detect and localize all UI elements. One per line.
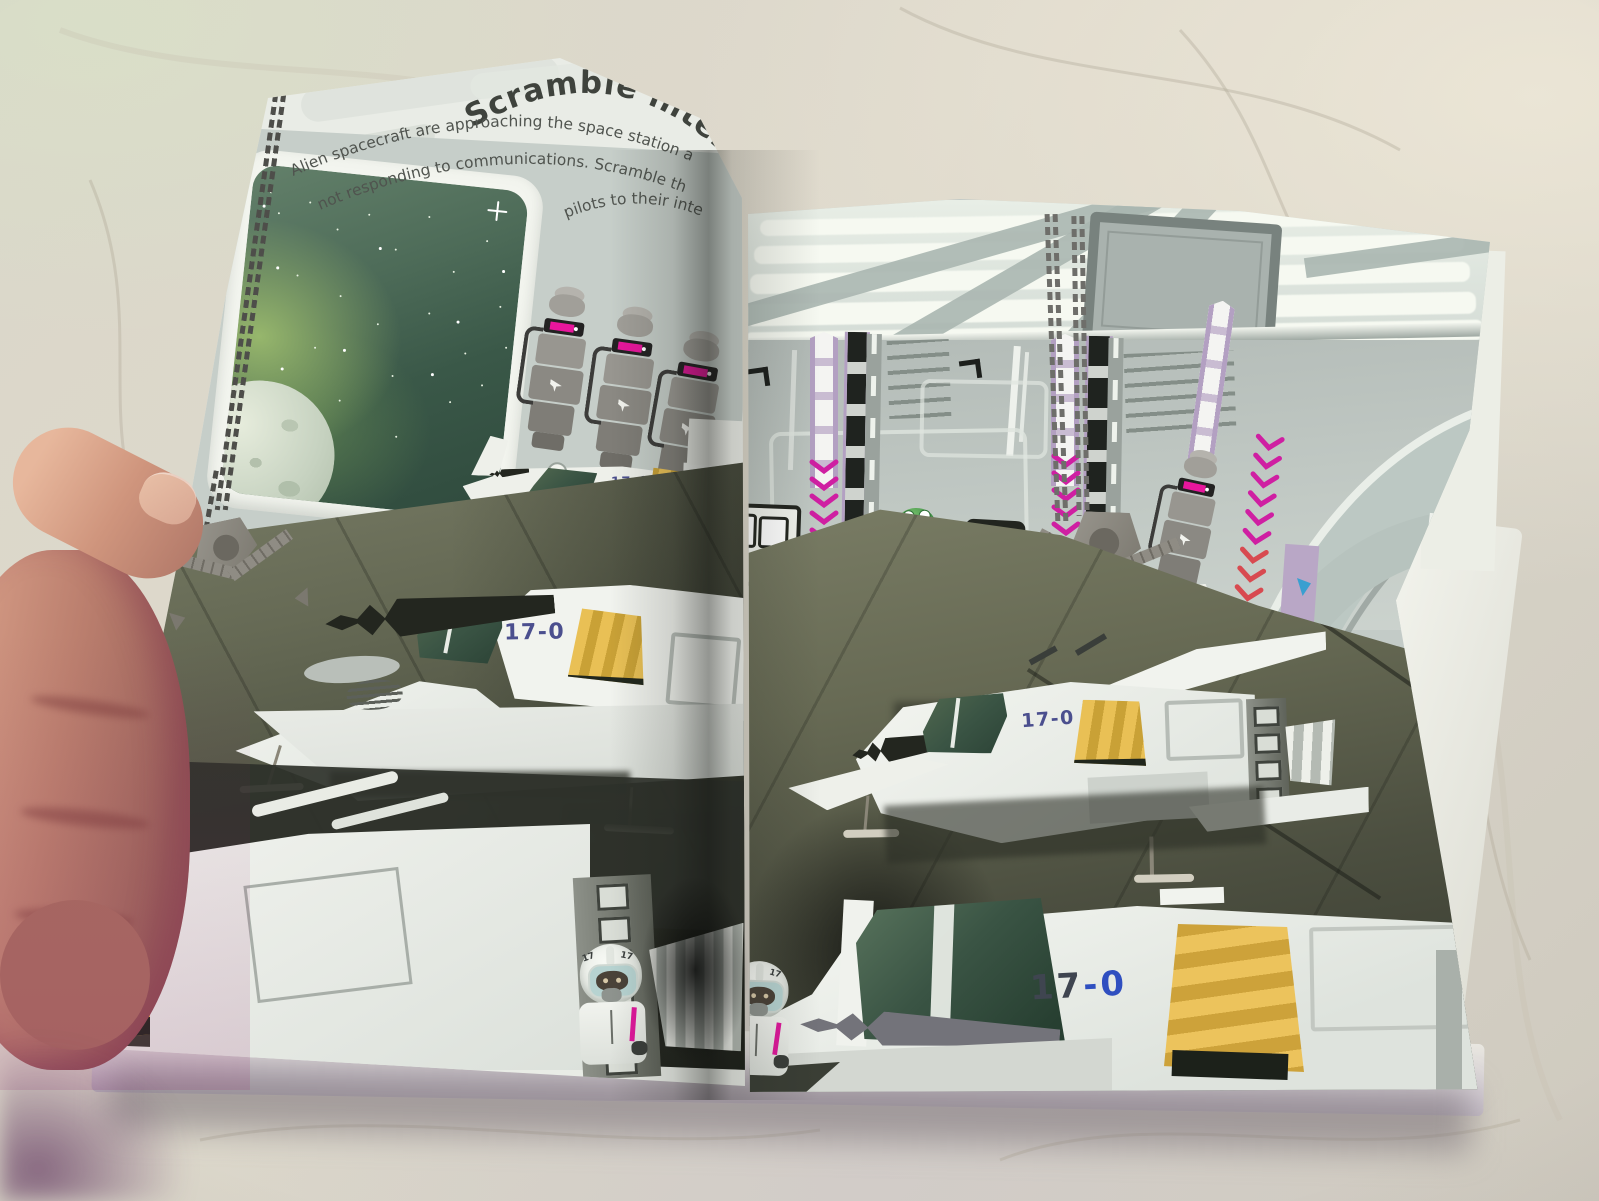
marking-prefix: 17 (1029, 966, 1084, 1009)
yellow-panel (1073, 699, 1146, 770)
hull-edge-band (1436, 950, 1462, 1096)
antenna-mast (1029, 646, 1058, 666)
interceptor-foreground-right: 17-0 (786, 631, 1350, 891)
hand-holding-page (0, 430, 250, 1090)
hatch-inner-line (1101, 231, 1263, 338)
marking-suffix: -0 (1082, 963, 1128, 1005)
engine-fan (1285, 719, 1336, 786)
photo-open-sticker-book: 17-0 17-0 (0, 0, 1599, 1201)
panel-dark-band (1172, 1050, 1289, 1080)
cockpit-canopy (913, 693, 1008, 755)
hand-color-cast (0, 430, 250, 1090)
hull-tab (1160, 887, 1225, 905)
landing-strut (863, 795, 869, 831)
wall-mark (959, 359, 982, 381)
book-gutter-deep-shadow (620, 840, 770, 1100)
landing-skid (1134, 874, 1194, 883)
corner-shadow (0, 1040, 190, 1201)
ship-marking-large: 17-0 (1029, 963, 1128, 1008)
antenna-mast (1075, 633, 1107, 656)
interceptor-closeup-bottom: 17-0 (744, 886, 1500, 1098)
wall-panel-outline (919, 379, 1048, 459)
hull-door-outline (1164, 698, 1244, 761)
ship-marking: 17-0 (1021, 707, 1076, 733)
